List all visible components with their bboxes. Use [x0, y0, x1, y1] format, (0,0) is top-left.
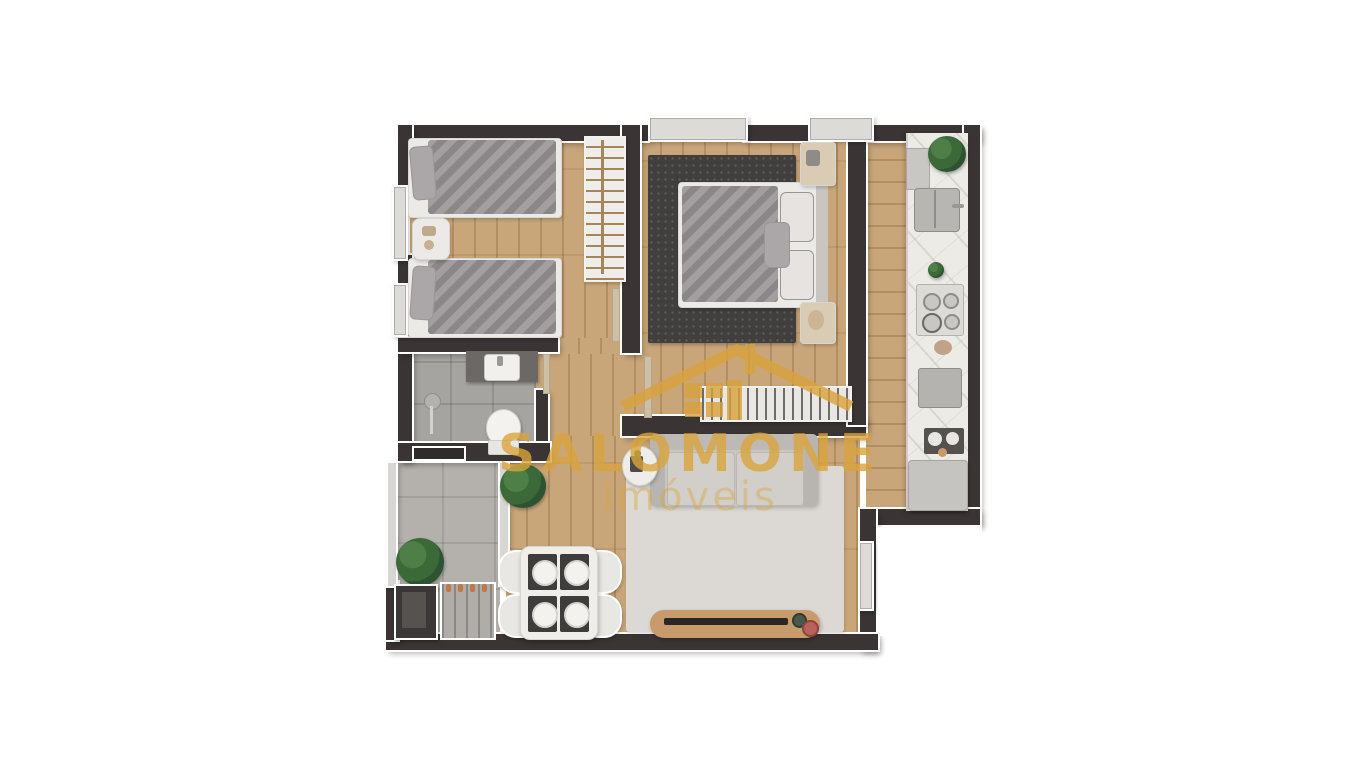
- plate-2: [564, 560, 590, 586]
- floor-plan: SALOMONE imóveis: [0, 0, 1367, 769]
- twin-wardrobe-rail: [601, 140, 604, 274]
- drying-rack-clip-3: [470, 584, 475, 592]
- burner-1: [923, 293, 941, 311]
- burner-3: [922, 313, 942, 333]
- window-twin-left-2: [392, 283, 408, 337]
- drying-rack-clip-2: [458, 584, 463, 592]
- twin-nightstand-decor-2: [424, 240, 434, 250]
- coffee-cup-1: [928, 432, 942, 446]
- bathroom-door: [543, 354, 550, 394]
- window-kitchen-top: [808, 116, 874, 142]
- window-twin-left-1: [392, 185, 408, 261]
- watermark-tagline: imóveis: [495, 474, 885, 520]
- tv-bench-decor-2: [802, 620, 819, 637]
- drying-rack-clip-4: [482, 584, 487, 592]
- wall-top-middle: [744, 125, 808, 141]
- master-nightstand-top-decor: [806, 150, 820, 166]
- bathroom-sink-faucet: [497, 356, 503, 366]
- tv: [664, 618, 788, 625]
- kitchen-decor-pot: [934, 340, 952, 355]
- laundry-shaft-inner: [402, 592, 426, 628]
- plate-1: [532, 560, 558, 586]
- window-master-top: [648, 116, 748, 142]
- kitchen-upper-cabinet: [906, 148, 930, 190]
- kitchen-plant: [928, 136, 966, 172]
- burner-4: [944, 314, 960, 330]
- coffee-jar: [938, 448, 947, 457]
- kitchen-sink-divider: [934, 190, 936, 228]
- twin-bed-2-duvet: [428, 260, 556, 334]
- twin-bed-1-duvet: [428, 140, 556, 214]
- exterior-mask: [878, 527, 982, 636]
- toilet-brush-stand-stem: [430, 406, 433, 434]
- twin-wardrobe: [584, 136, 626, 282]
- kitchen-oven: [918, 368, 962, 408]
- kitchen-sink-faucet: [952, 204, 964, 208]
- kitchen-cooktop: [916, 284, 964, 336]
- master-headboard: [816, 184, 828, 304]
- window-living-right: [858, 541, 874, 611]
- twin-bed-1-pillow: [409, 145, 438, 201]
- kitchen-herb-plant: [928, 262, 944, 278]
- bathroom-window-niche: [412, 446, 466, 461]
- twin-nightstand-decor: [422, 226, 436, 236]
- wall-twin-bedroom-bottom: [398, 338, 558, 352]
- drying-rack-clip-1: [446, 584, 451, 592]
- plate-4: [564, 602, 590, 628]
- twin-nightstand: [412, 218, 450, 260]
- terrace-plant: [396, 538, 444, 586]
- kitchen-sink: [914, 188, 960, 232]
- master-nightstand-bottom-decor: [808, 310, 824, 330]
- master-accent-pillow: [764, 222, 790, 268]
- twin-bed-2-pillow: [409, 265, 437, 321]
- plate-3: [532, 602, 558, 628]
- coffee-cup-2: [946, 432, 959, 445]
- burner-2: [943, 293, 959, 309]
- refrigerator: [908, 460, 968, 511]
